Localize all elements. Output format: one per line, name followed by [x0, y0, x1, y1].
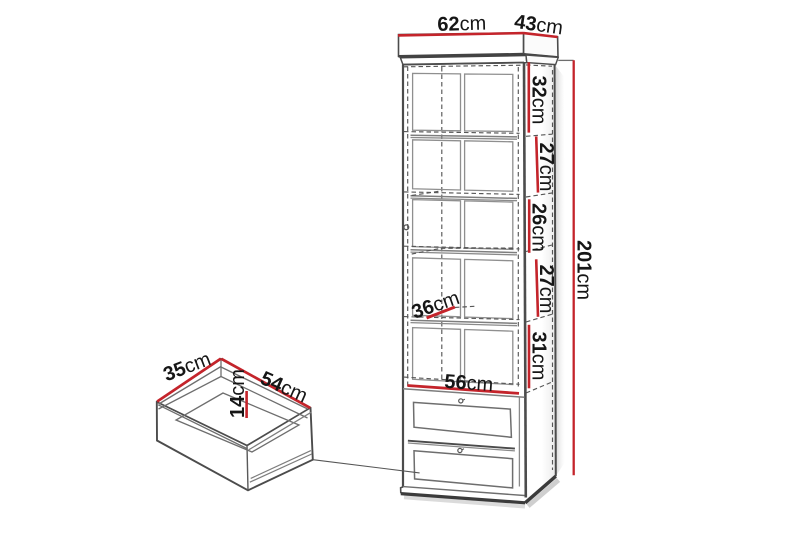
- svg-text:31cm: 31cm: [528, 332, 550, 381]
- svg-text:27cm: 27cm: [535, 143, 557, 192]
- svg-text:14cm: 14cm: [227, 369, 249, 418]
- svg-text:27cm: 27cm: [535, 265, 557, 314]
- svg-text:56cm: 56cm: [444, 371, 494, 396]
- svg-text:32cm: 32cm: [528, 76, 550, 125]
- svg-text:201cm: 201cm: [573, 240, 595, 300]
- svg-text:26cm: 26cm: [528, 203, 550, 252]
- svg-text:62cm: 62cm: [437, 13, 486, 36]
